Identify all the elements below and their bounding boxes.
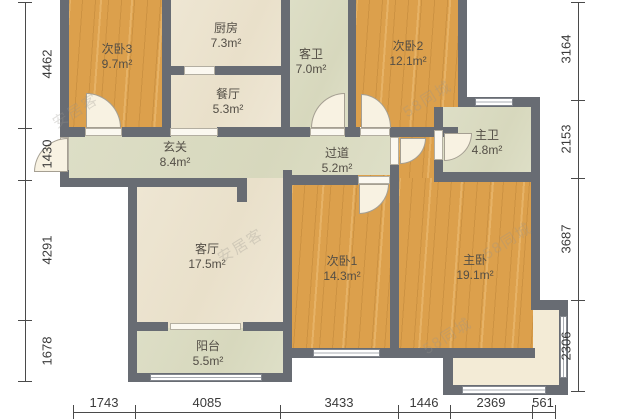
opening-guestbath-door — [310, 128, 345, 136]
dim-label-bottom-4: 2369 — [477, 395, 506, 410]
dim-tick — [571, 100, 585, 101]
dim-line-bottom — [73, 412, 555, 413]
wall-hall-top-seg3 — [217, 127, 310, 137]
room-label-bedroom2: 次卧212.1m² — [389, 39, 426, 69]
wall-foyer-bottom — [60, 178, 247, 187]
opening-living-balcony — [170, 323, 241, 330]
wall-kitchen-divider-right — [215, 66, 281, 75]
wall-hall-top-seg1 — [69, 127, 85, 137]
dim-label-right-3: 2306 — [559, 332, 574, 361]
dim-tick — [280, 405, 281, 419]
dim-label-bottom-5: 561 — [532, 395, 554, 410]
opening-bedroom3-door — [85, 128, 122, 136]
wall-kitchen-divider-left — [171, 66, 184, 75]
dim-tick — [555, 405, 556, 419]
wall-guestbath-bedroom2 — [348, 0, 356, 131]
opening-master-door — [390, 137, 399, 165]
window-masterbath-top — [475, 98, 513, 106]
wall-living-right — [283, 170, 292, 382]
dim-tick — [571, 178, 585, 179]
room-label-bedroom3: 次卧39.7m² — [102, 42, 133, 72]
room-label-living: 客厅17.5m² — [188, 242, 225, 272]
dim-tick — [135, 405, 136, 419]
wall-masterbath-bottom — [434, 172, 540, 182]
room-label-master-bedroom: 主卧19.1m² — [456, 253, 493, 283]
room-label-foyer: 玄关8.4m² — [160, 140, 191, 170]
dim-label-left-2: 4291 — [40, 236, 55, 265]
dim-tick — [571, 300, 585, 301]
floor-rear-balcony-right — [533, 308, 560, 388]
dim-label-bottom-3: 1446 — [410, 395, 439, 410]
room-label-master-bath: 主卫4.8m² — [472, 128, 503, 158]
dim-line-left — [25, 2, 26, 382]
room-label-guest-bath: 客卫7.0m² — [296, 47, 327, 77]
wall-dining-right — [281, 0, 290, 137]
wall-balcony-divider-left — [128, 322, 168, 331]
wall-stub-living-top — [237, 187, 247, 202]
window-bedroom1-bottom — [313, 349, 380, 357]
dim-tick — [18, 381, 32, 382]
wall-masterbath-left-upper — [434, 107, 443, 130]
room-label-corridor: 过道5.2m² — [322, 146, 353, 176]
floor-plan-canvas: 次卧39.7m² 厨房7.3m² 餐厅5.3m² 客卫7.0m² 次卧212.1… — [0, 0, 640, 420]
wall-hall-top-seg2 — [122, 127, 170, 137]
wall-outer-right-upper — [531, 100, 540, 308]
room-label-dining: 餐厅5.3m² — [213, 87, 244, 117]
dim-label-bottom-0: 1743 — [90, 395, 119, 410]
wall-bedroom3-right — [162, 0, 171, 137]
dim-label-left-0: 4462 — [40, 50, 55, 79]
dim-label-bottom-2: 3433 — [325, 395, 354, 410]
opening-bedroom1-door — [358, 176, 390, 184]
opening-masterbath-door — [434, 130, 443, 160]
dim-line-right — [578, 2, 579, 392]
wall-bedroom1-master-divider — [390, 165, 399, 358]
room-label-balcony: 阳台5.5m² — [193, 339, 224, 369]
opening-dining-foyer — [170, 128, 218, 136]
dim-tick — [571, 391, 585, 392]
dim-label-right-0: 3164 — [559, 35, 574, 64]
dim-tick — [398, 405, 399, 419]
dim-tick — [18, 180, 32, 181]
dim-tick — [571, 2, 585, 3]
dim-tick — [450, 405, 451, 419]
dim-label-right-1: 2153 — [559, 125, 574, 154]
room-label-kitchen: 厨房7.3m² — [211, 21, 242, 51]
dim-tick — [18, 128, 32, 129]
room-label-bedroom1: 次卧114.3m² — [323, 254, 360, 284]
opening-bedroom2-door — [360, 128, 390, 136]
dim-label-left-1: 1430 — [40, 140, 55, 169]
wall-hall-top-seg4 — [345, 127, 360, 137]
wall-bedroom2-right — [458, 0, 467, 107]
wall-balcony-divider-right — [243, 322, 283, 331]
window-rear-balcony-bottom — [462, 386, 546, 394]
dim-tick — [73, 405, 74, 419]
dim-tick — [18, 320, 32, 321]
dim-label-right-2: 3687 — [559, 225, 574, 254]
dim-label-left-3: 1678 — [40, 337, 55, 366]
wall-outer-left-top — [60, 0, 69, 137]
dim-label-bottom-1: 4085 — [193, 395, 222, 410]
window-balcony-bottom — [150, 374, 262, 381]
opening-kitchen-dining — [184, 66, 215, 75]
wall-corridor-bottom — [283, 175, 358, 185]
dim-tick — [18, 2, 32, 3]
wall-living-left-outer — [128, 178, 137, 382]
